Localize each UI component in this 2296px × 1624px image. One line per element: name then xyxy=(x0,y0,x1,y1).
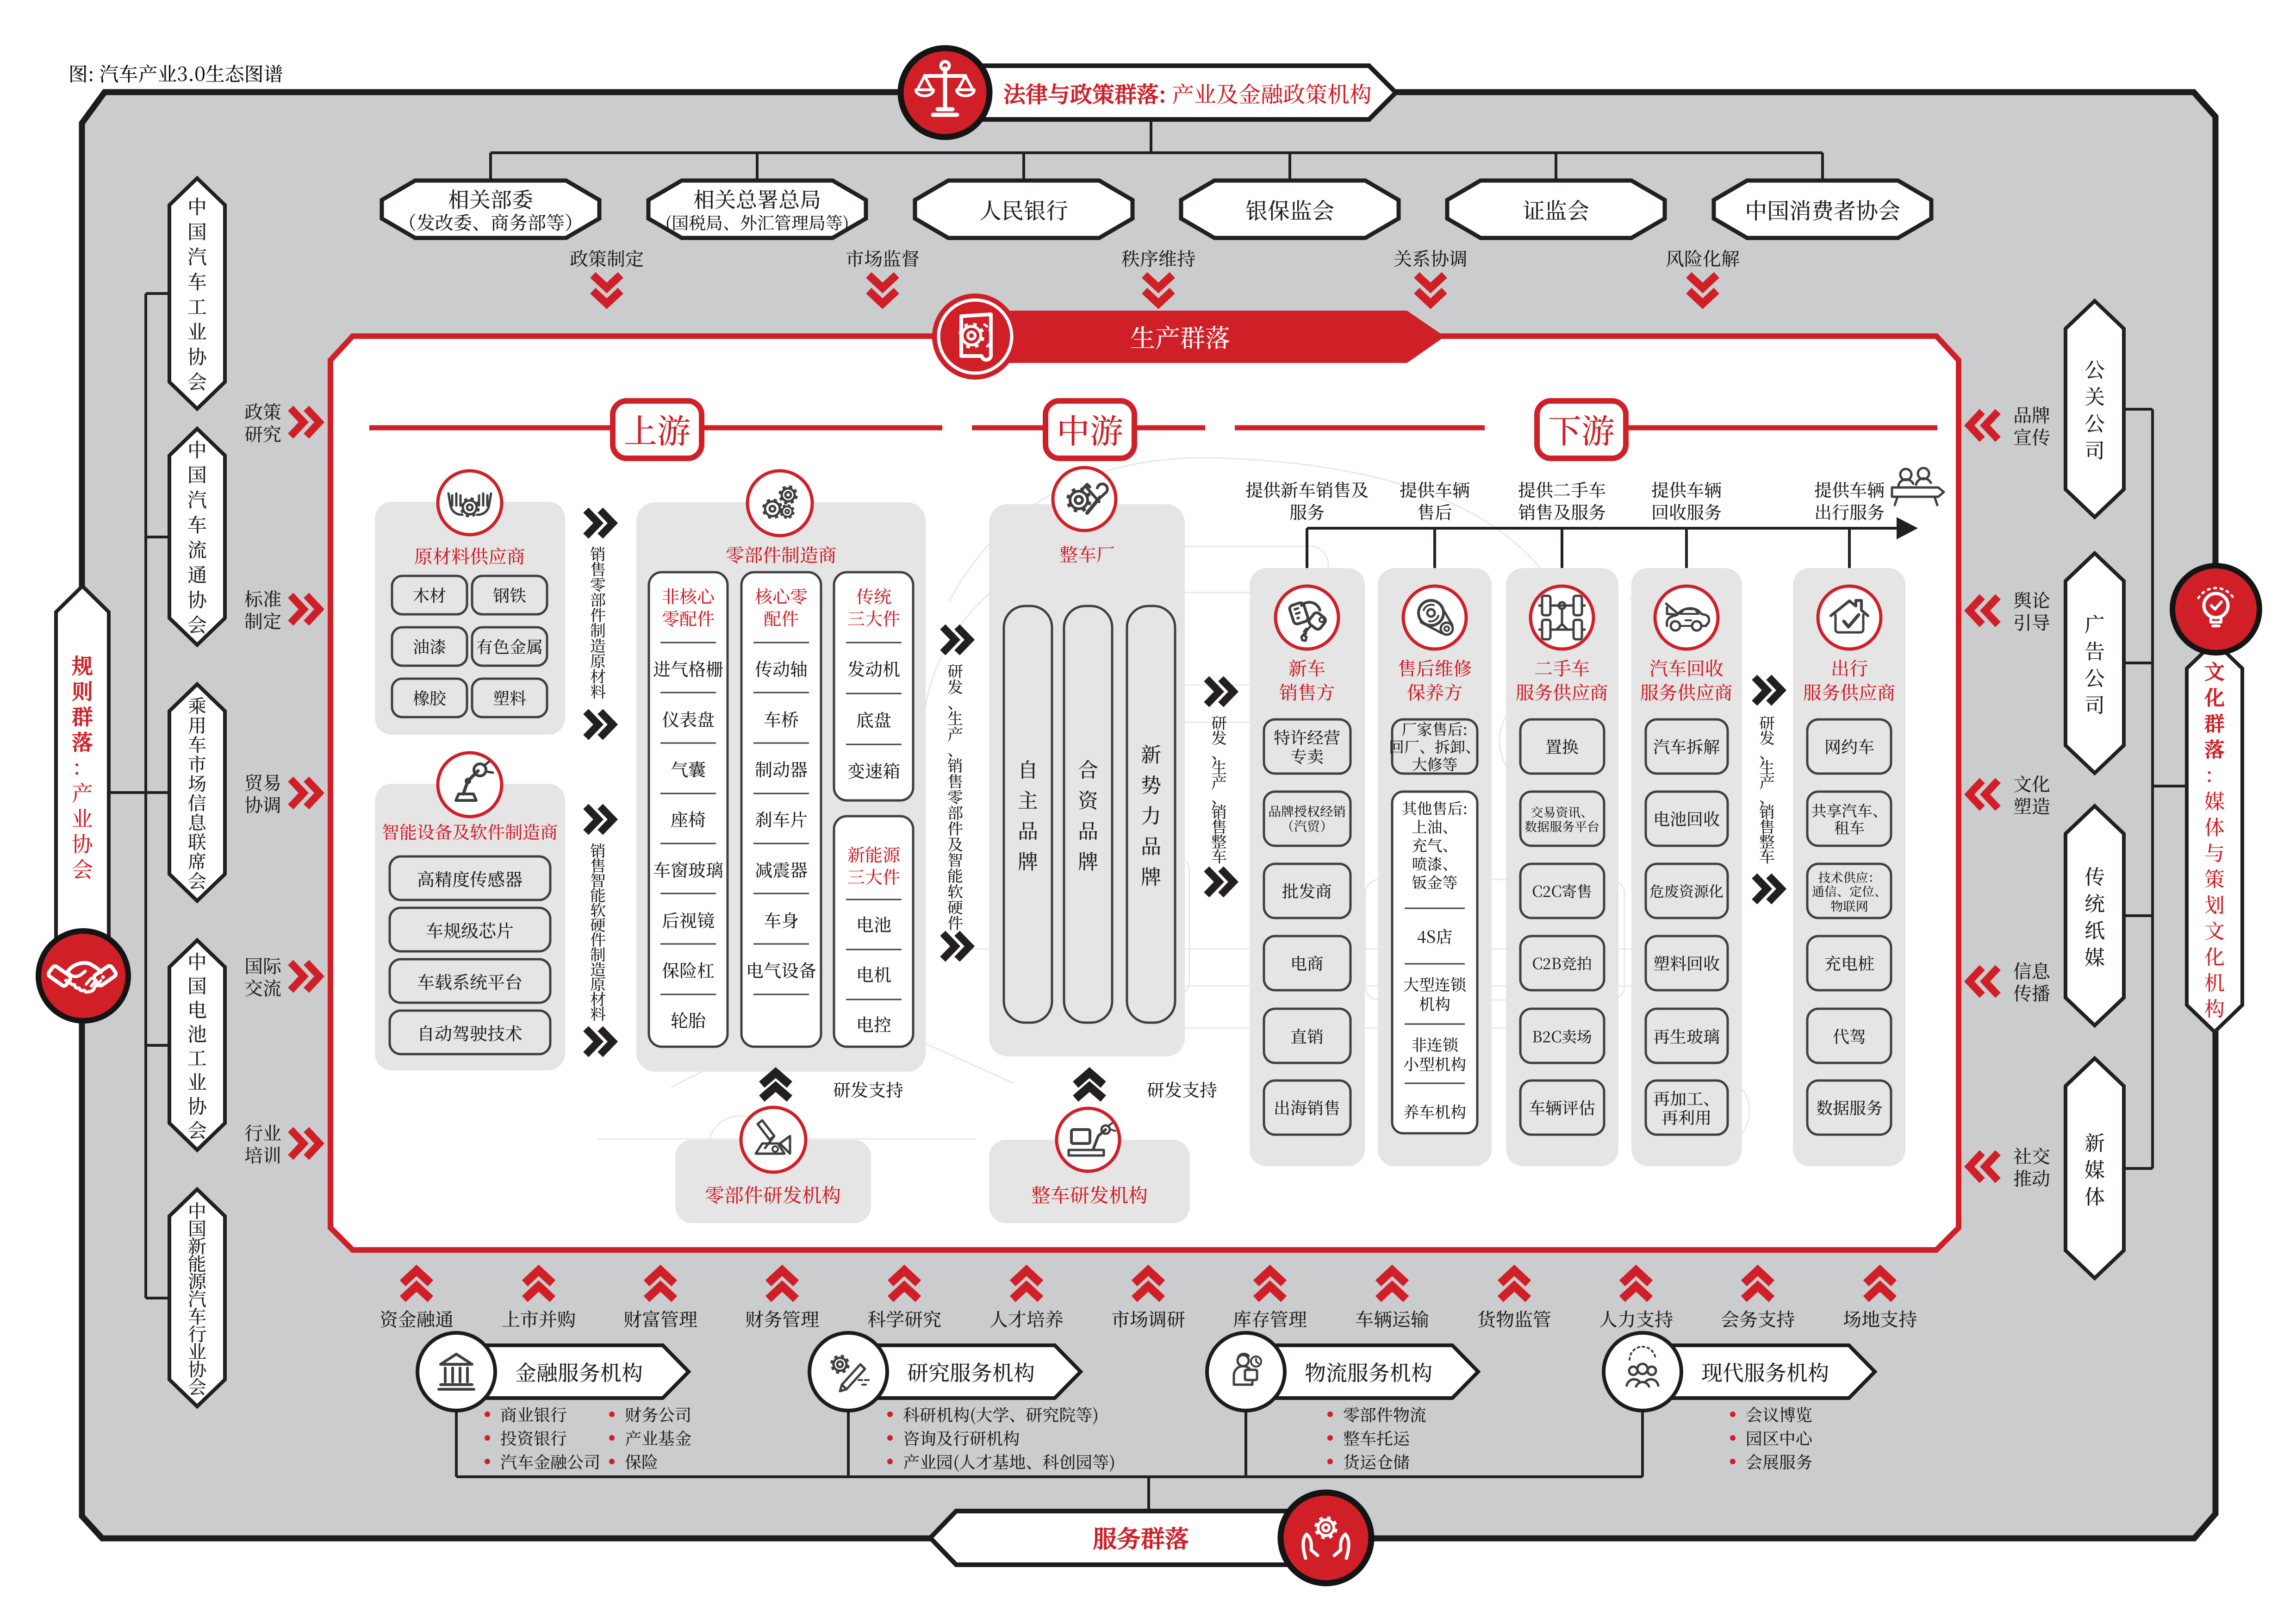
svg-text:小型机构: 小型机构 xyxy=(1403,1052,1466,1075)
svg-text:司: 司 xyxy=(2084,434,2105,464)
svg-text:新: 新 xyxy=(2084,1127,2105,1156)
svg-text:协调: 协调 xyxy=(244,791,281,818)
svg-text:财务公司: 财务公司 xyxy=(625,1403,691,1426)
svg-text:新能源: 新能源 xyxy=(847,841,900,867)
svg-text:咨询及行研机构: 咨询及行研机构 xyxy=(903,1426,1020,1450)
svg-text:制动器: 制动器 xyxy=(755,756,808,781)
svg-text:司: 司 xyxy=(2084,689,2105,718)
svg-text:协: 协 xyxy=(187,585,207,613)
svg-text:中: 中 xyxy=(187,947,207,975)
svg-text:电: 电 xyxy=(187,995,207,1023)
svg-text:关: 关 xyxy=(2084,381,2105,410)
svg-text:车: 车 xyxy=(187,510,207,538)
svg-text:车规级芯片: 车规级芯片 xyxy=(426,917,514,943)
svg-text:售后: 售后 xyxy=(1417,499,1452,524)
svg-text:下游: 下游 xyxy=(1548,405,1615,453)
svg-text:会: 会 xyxy=(72,853,93,884)
svg-text:会: 会 xyxy=(187,367,207,395)
svg-text:策: 策 xyxy=(2204,863,2225,893)
svg-text:货运仓储: 货运仓储 xyxy=(1343,1450,1410,1474)
svg-text:车载系统平台: 车载系统平台 xyxy=(417,968,523,994)
svg-text:油漆: 油漆 xyxy=(413,635,446,658)
svg-text:法律与政策群落: 产业及金融政策机构: 法律与政策群落: 产业及金融政策机构 xyxy=(1003,77,1372,109)
svg-text:件: 件 xyxy=(947,911,963,934)
svg-text:传播: 传播 xyxy=(2013,980,2050,1006)
svg-text:后视镜: 后视镜 xyxy=(662,907,715,932)
svg-text:业: 业 xyxy=(187,317,207,345)
svg-text:配件: 配件 xyxy=(764,605,799,631)
svg-text:车窗玻璃: 车窗玻璃 xyxy=(653,856,723,882)
svg-text:服务供应商: 服务供应商 xyxy=(1640,679,1733,705)
svg-text:机: 机 xyxy=(2204,967,2225,996)
svg-text:产业园(人才基地、科创园等): 产业园(人才基地、科创园等) xyxy=(903,1450,1115,1474)
svg-text:国: 国 xyxy=(187,460,207,488)
svg-text:合: 合 xyxy=(1078,754,1098,783)
svg-text:研发支持: 研发支持 xyxy=(833,1076,903,1102)
svg-text:服务供应商: 服务供应商 xyxy=(1516,679,1608,705)
svg-text:金融服务机构: 金融服务机构 xyxy=(515,1356,643,1387)
svg-text:仪表盘: 仪表盘 xyxy=(662,706,715,731)
svg-text:4S店: 4S店 xyxy=(1417,924,1453,948)
svg-text:现代服务机构: 现代服务机构 xyxy=(1701,1356,1829,1387)
svg-text:体: 体 xyxy=(2084,1181,2105,1210)
svg-text:数据服务: 数据服务 xyxy=(1816,1096,1883,1119)
svg-text:塑料: 塑料 xyxy=(493,686,526,710)
svg-text:车: 车 xyxy=(187,267,207,295)
svg-text:会: 会 xyxy=(187,610,207,638)
svg-text:整车研发机构: 整车研发机构 xyxy=(1031,1181,1148,1208)
svg-text:提供车辆: 提供车辆 xyxy=(1400,476,1470,502)
svg-text:自动驾驶技术: 自动驾驶技术 xyxy=(417,1020,523,1045)
svg-text:车: 车 xyxy=(1759,844,1775,867)
svg-text:关系协调: 关系协调 xyxy=(1394,245,1468,271)
svg-text:培训: 培训 xyxy=(244,1142,281,1168)
svg-text:出行: 出行 xyxy=(1831,655,1868,681)
svg-text:资金融通: 资金融通 xyxy=(380,1305,454,1332)
svg-text:会展服务: 会展服务 xyxy=(1746,1450,1812,1474)
svg-text:中: 中 xyxy=(187,192,207,220)
svg-text:化: 化 xyxy=(2204,941,2225,970)
svg-text:池: 池 xyxy=(187,1019,207,1047)
svg-text:研究: 研究 xyxy=(244,420,281,447)
svg-text:智能设备及软件制造商: 智能设备及软件制造商 xyxy=(382,818,558,844)
svg-text:塑料回收: 塑料回收 xyxy=(1653,951,1720,975)
svg-text:车: 车 xyxy=(1211,844,1227,867)
svg-text:：: ： xyxy=(2204,759,2225,789)
svg-text:（汽贸）: （汽贸） xyxy=(1281,817,1333,835)
svg-text:协: 协 xyxy=(187,1092,207,1119)
svg-text:势: 势 xyxy=(1141,769,1161,799)
svg-text:划: 划 xyxy=(2204,889,2225,918)
svg-text:刹车片: 刹车片 xyxy=(755,806,808,831)
svg-text:落: 落 xyxy=(2204,733,2225,763)
svg-text:物流服务机构: 物流服务机构 xyxy=(1305,1356,1432,1387)
svg-text:文: 文 xyxy=(2204,915,2225,944)
svg-text:自: 自 xyxy=(1018,754,1038,783)
svg-text:汽车回收: 汽车回收 xyxy=(1649,655,1724,681)
svg-text:二手车: 二手车 xyxy=(1534,655,1590,681)
svg-text:销售及服务: 销售及服务 xyxy=(1518,499,1606,524)
svg-text:会: 会 xyxy=(187,1116,207,1143)
svg-text:货物监管: 货物监管 xyxy=(1477,1305,1551,1332)
svg-text:提供车辆: 提供车辆 xyxy=(1814,476,1885,502)
svg-text:钢铁: 钢铁 xyxy=(493,583,526,607)
svg-text:保险: 保险 xyxy=(625,1450,658,1474)
svg-text:银保监会: 银保监会 xyxy=(1245,194,1334,225)
svg-text:产业基金: 产业基金 xyxy=(625,1426,691,1450)
svg-text:中: 中 xyxy=(187,435,207,463)
svg-text:橡胶: 橡胶 xyxy=(413,686,446,710)
svg-text:构: 构 xyxy=(2204,993,2225,1022)
svg-text:国: 国 xyxy=(187,971,207,999)
svg-text:研究服务机构: 研究服务机构 xyxy=(907,1356,1035,1387)
svg-text:售后维修: 售后维修 xyxy=(1398,655,1472,681)
svg-text:市场监督: 市场监督 xyxy=(846,245,920,271)
svg-text:科研机构(大学、研究院等): 科研机构(大学、研究院等) xyxy=(903,1403,1099,1426)
svg-text:底盘: 底盘 xyxy=(856,706,891,732)
svg-text:库存管理: 库存管理 xyxy=(1233,1305,1307,1332)
svg-text:销售方: 销售方 xyxy=(1279,679,1335,705)
svg-text:物联网: 物联网 xyxy=(1831,897,1868,915)
svg-text:置换: 置换 xyxy=(1545,735,1579,758)
svg-text:人力支持: 人力支持 xyxy=(1599,1305,1673,1332)
svg-text:座椅: 座椅 xyxy=(671,806,706,831)
svg-text:汽: 汽 xyxy=(187,485,207,513)
svg-text:市场调研: 市场调研 xyxy=(1111,1305,1185,1332)
svg-text:数据服务平台: 数据服务平台 xyxy=(1524,817,1599,835)
svg-text:保养方: 保养方 xyxy=(1407,679,1462,705)
svg-text:风险化解: 风险化解 xyxy=(1666,245,1740,271)
svg-text:中国消费者协会: 中国消费者协会 xyxy=(1745,194,1900,225)
svg-text:（发改委、商务部等）: （发改委、商务部等） xyxy=(398,209,583,235)
svg-text:流: 流 xyxy=(187,535,207,563)
svg-text:车身: 车身 xyxy=(764,907,799,932)
svg-text:电池: 电池 xyxy=(856,911,891,937)
svg-text:核心零: 核心零 xyxy=(755,583,808,608)
svg-text:新: 新 xyxy=(1141,738,1161,768)
svg-text:(国税局、外汇管理局等): (国税局、外汇管理局等) xyxy=(665,209,849,234)
svg-text:传统: 传统 xyxy=(856,583,891,608)
svg-text:电控: 电控 xyxy=(856,1011,891,1037)
svg-text:回收服务: 回收服务 xyxy=(1651,499,1722,524)
svg-text:财务管理: 财务管理 xyxy=(745,1305,819,1332)
svg-text:原材料供应商: 原材料供应商 xyxy=(414,543,525,569)
svg-text:变速箱: 变速箱 xyxy=(847,757,900,783)
svg-text:人才培养: 人才培养 xyxy=(989,1305,1064,1332)
svg-text:三大件: 三大件 xyxy=(847,863,900,889)
svg-text:专卖: 专卖 xyxy=(1290,744,1324,768)
svg-text:零部件研发机构: 零部件研发机构 xyxy=(705,1181,841,1208)
svg-text:高精度传感器: 高精度传感器 xyxy=(417,866,523,891)
svg-text:三大件: 三大件 xyxy=(847,605,900,631)
svg-text:交流: 交流 xyxy=(244,974,281,1001)
svg-text:政策制定: 政策制定 xyxy=(570,245,644,271)
svg-text:会: 会 xyxy=(188,1373,206,1399)
svg-text:料: 料 xyxy=(590,1002,606,1024)
svg-text:服务供应商: 服务供应商 xyxy=(1803,679,1896,705)
svg-text:零部件制造商: 零部件制造商 xyxy=(726,541,837,568)
svg-text:大修等: 大修等 xyxy=(1412,753,1458,775)
svg-text:投资银行: 投资银行 xyxy=(500,1426,567,1450)
svg-text:通: 通 xyxy=(187,560,207,588)
svg-text:车辆评估: 车辆评估 xyxy=(1529,1096,1595,1119)
svg-text:电池回收: 电池回收 xyxy=(1653,807,1720,831)
svg-text:提供二手车: 提供二手车 xyxy=(1518,476,1606,502)
svg-text:钣金等: 钣金等 xyxy=(1412,871,1458,893)
svg-text:再利用: 再利用 xyxy=(1661,1106,1711,1129)
svg-text:上市并购: 上市并购 xyxy=(502,1305,576,1332)
svg-text:进气格栅: 进气格栅 xyxy=(653,656,723,681)
svg-text:塑造: 塑造 xyxy=(2013,793,2050,819)
svg-text:料: 料 xyxy=(590,680,606,702)
svg-text:力: 力 xyxy=(1141,800,1161,829)
svg-text:文: 文 xyxy=(2204,656,2225,685)
svg-text:C2C寄售: C2C寄售 xyxy=(1532,880,1592,902)
svg-text:资: 资 xyxy=(1078,784,1098,814)
svg-text:直销: 直销 xyxy=(1290,1024,1324,1048)
svg-text:汽车金融公司: 汽车金融公司 xyxy=(500,1450,600,1474)
svg-text:出海销售: 出海销售 xyxy=(1274,1096,1340,1119)
svg-text:图: 汽车产业3.0生态图谱: 图: 汽车产业3.0生态图谱 xyxy=(68,59,283,87)
svg-text:科学研究: 科学研究 xyxy=(867,1305,941,1332)
svg-text:品: 品 xyxy=(1141,830,1161,860)
svg-text:气囊: 气囊 xyxy=(671,756,706,781)
svg-text:证监会: 证监会 xyxy=(1523,194,1589,225)
svg-text:汽车拆解: 汽车拆解 xyxy=(1653,735,1720,758)
svg-text:媒: 媒 xyxy=(2204,785,2225,815)
svg-text:C2B竞拍: C2B竞拍 xyxy=(1532,952,1592,974)
svg-text:代驾: 代驾 xyxy=(1833,1024,1866,1048)
svg-text:电机: 电机 xyxy=(856,961,891,987)
svg-text:牌: 牌 xyxy=(1078,845,1098,875)
svg-text:电商: 电商 xyxy=(1290,951,1324,975)
svg-text:协: 协 xyxy=(187,342,207,370)
svg-text:养车机构: 养车机构 xyxy=(1403,1100,1466,1123)
svg-text:秩序维持: 秩序维持 xyxy=(1121,245,1195,271)
svg-text:会务支持: 会务支持 xyxy=(1721,1305,1795,1332)
svg-text:租车: 租车 xyxy=(1834,817,1865,838)
svg-text:保险杠: 保险杠 xyxy=(662,957,715,982)
svg-text:网约车: 网约车 xyxy=(1824,735,1874,758)
svg-text:提供新车销售及: 提供新车销售及 xyxy=(1245,476,1369,502)
svg-text:减震器: 减震器 xyxy=(755,856,808,882)
svg-text:化: 化 xyxy=(2204,681,2225,711)
svg-text:宣传: 宣传 xyxy=(2013,424,2050,450)
svg-text:整车托运: 整车托运 xyxy=(1343,1426,1410,1450)
svg-text:危废资源化: 危废资源化 xyxy=(1649,880,1724,901)
svg-text:生产群落: 生产群落 xyxy=(1130,319,1230,355)
svg-text:新车: 新车 xyxy=(1288,655,1325,681)
svg-text:推动: 推动 xyxy=(2013,1165,2050,1191)
svg-text:主: 主 xyxy=(1018,784,1038,814)
svg-text:机构: 机构 xyxy=(1419,992,1450,1015)
svg-text:场地支持: 场地支持 xyxy=(1843,1305,1917,1332)
svg-text:车桥: 车桥 xyxy=(764,706,799,731)
svg-text:上游: 上游 xyxy=(624,405,691,453)
svg-text:出行服务: 出行服务 xyxy=(1814,499,1885,524)
svg-text:统: 统 xyxy=(2084,887,2105,917)
svg-text:B2C卖场: B2C卖场 xyxy=(1532,1025,1592,1047)
svg-text:传动轴: 传动轴 xyxy=(755,656,808,681)
svg-text:财富管理: 财富管理 xyxy=(623,1305,697,1332)
svg-text:媒: 媒 xyxy=(2084,941,2105,971)
svg-text:中游: 中游 xyxy=(1057,405,1123,453)
svg-text:媒: 媒 xyxy=(2084,1154,2105,1183)
svg-text:整车厂: 整车厂 xyxy=(1059,541,1115,567)
svg-text:会: 会 xyxy=(188,867,206,893)
svg-text:传: 传 xyxy=(2084,861,2105,890)
svg-text:告: 告 xyxy=(2084,635,2105,665)
svg-text:服务群落: 服务群落 xyxy=(1093,1520,1189,1555)
svg-text:引导: 引导 xyxy=(2013,609,2050,635)
svg-text:再生玻璃: 再生玻璃 xyxy=(1653,1024,1720,1048)
svg-text:与: 与 xyxy=(2204,837,2225,867)
svg-text:充电桩: 充电桩 xyxy=(1824,951,1874,975)
svg-text:木材: 木材 xyxy=(413,583,446,607)
svg-text:工: 工 xyxy=(187,292,207,320)
svg-text:零部件物流: 零部件物流 xyxy=(1343,1403,1426,1426)
svg-text:园区中心: 园区中心 xyxy=(1746,1426,1812,1450)
svg-text:牌: 牌 xyxy=(1141,861,1161,890)
svg-text:汽: 汽 xyxy=(187,242,207,270)
svg-text:非核心: 非核心 xyxy=(662,583,715,608)
svg-text:国: 国 xyxy=(187,217,207,245)
svg-text:批发商: 批发商 xyxy=(1282,879,1332,903)
svg-text:提供车辆: 提供车辆 xyxy=(1651,476,1722,502)
svg-text:电气设备: 电气设备 xyxy=(746,957,816,982)
svg-text:发动机: 发动机 xyxy=(847,656,900,681)
svg-text:制定: 制定 xyxy=(244,607,281,634)
svg-text:公: 公 xyxy=(2084,354,2105,383)
svg-text:工: 工 xyxy=(187,1043,207,1071)
svg-text:商业银行: 商业银行 xyxy=(500,1403,567,1426)
svg-text:有色金属: 有色金属 xyxy=(476,635,543,658)
svg-text:轮胎: 轮胎 xyxy=(671,1007,706,1032)
svg-text:纸: 纸 xyxy=(2084,914,2105,944)
svg-text:研发支持: 研发支持 xyxy=(1147,1076,1217,1102)
svg-text:业: 业 xyxy=(187,1068,207,1095)
svg-text:体: 体 xyxy=(2204,811,2225,841)
svg-text:人民银行: 人民银行 xyxy=(979,194,1068,225)
svg-text:会议博览: 会议博览 xyxy=(1746,1403,1812,1426)
svg-text:零配件: 零配件 xyxy=(662,605,715,631)
svg-text:服务: 服务 xyxy=(1289,499,1325,524)
svg-text:公: 公 xyxy=(2084,407,2105,437)
svg-text:公: 公 xyxy=(2084,662,2105,692)
svg-text:车辆运输: 车辆运输 xyxy=(1355,1305,1429,1332)
svg-text:牌: 牌 xyxy=(1018,845,1038,875)
svg-text:品: 品 xyxy=(1018,815,1038,844)
svg-text:品: 品 xyxy=(1078,815,1098,844)
svg-text:群: 群 xyxy=(2204,707,2225,737)
svg-text:广: 广 xyxy=(2084,608,2105,638)
